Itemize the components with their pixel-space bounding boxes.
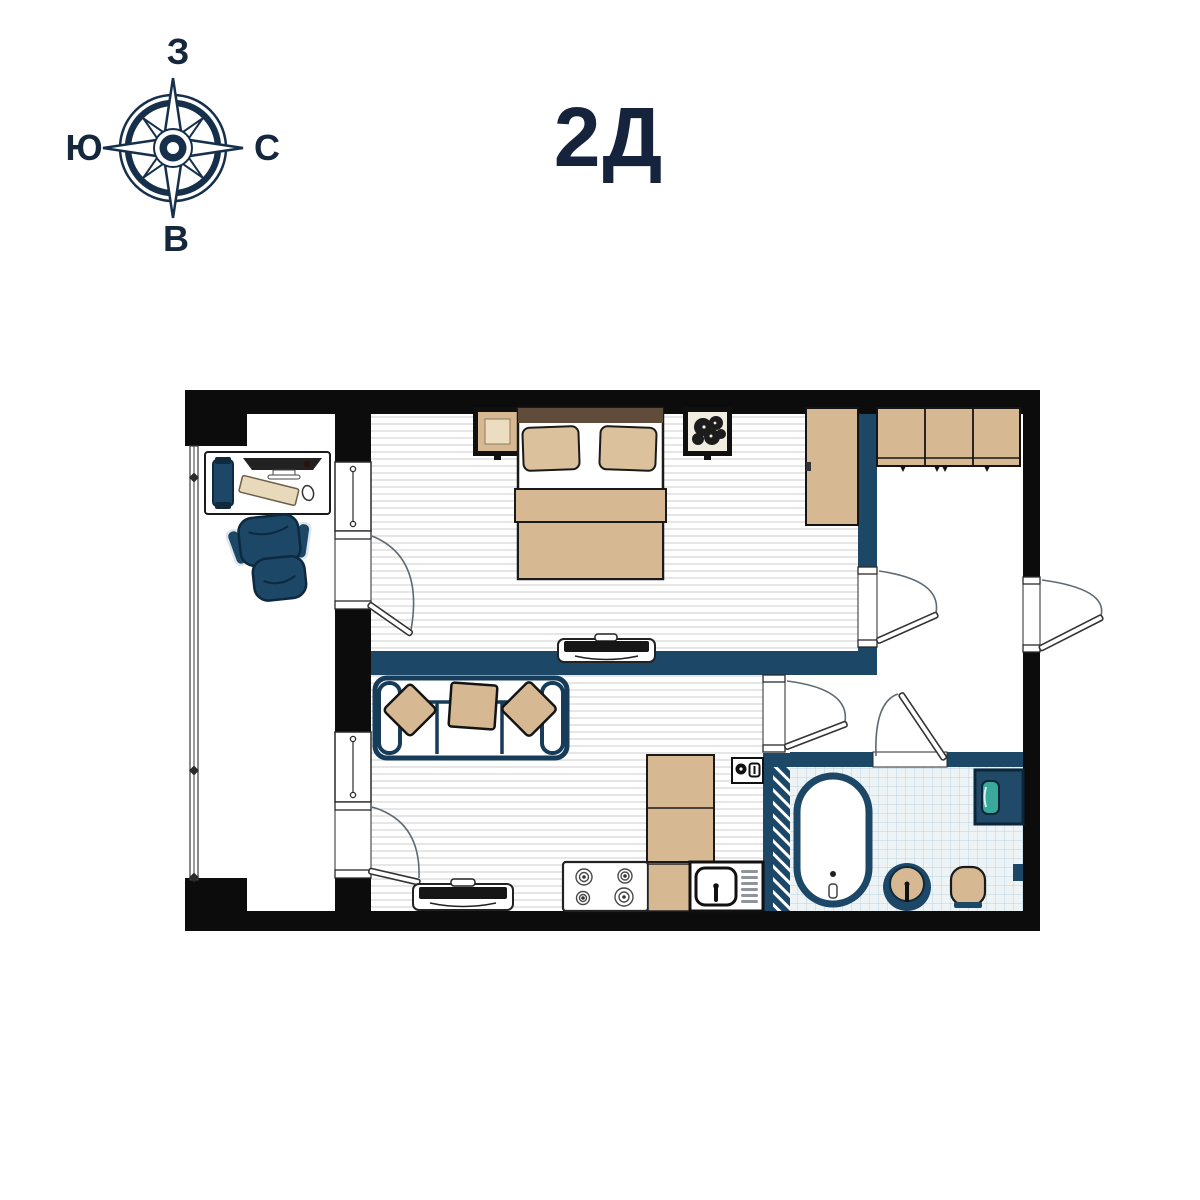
plan-title: 2Д xyxy=(509,95,709,179)
compass-label-left: Ю xyxy=(65,127,102,168)
vent-shaft-hatch xyxy=(773,767,790,911)
living-room-window xyxy=(335,732,371,802)
towel-rail xyxy=(1013,864,1023,881)
floor-plan-page: З С В Ю 2Д xyxy=(0,0,1200,1200)
toilet xyxy=(951,867,985,908)
compass-rose: З С В Ю xyxy=(58,33,288,263)
bed-blanket-fold xyxy=(515,489,666,522)
kitchen-sink xyxy=(690,862,763,911)
compass-label-bottom: В xyxy=(163,218,189,259)
bedroom-tv xyxy=(558,634,655,662)
bed-pillow xyxy=(599,426,656,471)
wall-hallway-bathroom-right xyxy=(947,752,1023,767)
wardrobe xyxy=(806,408,858,525)
wall-corner-bottom-left xyxy=(185,878,247,931)
balcony-wall-lower xyxy=(335,878,371,911)
kitchen-counter xyxy=(648,864,690,911)
bed-blanket xyxy=(518,522,663,579)
door-leaf xyxy=(1039,615,1104,652)
compass-label-top: З xyxy=(167,33,190,72)
bed-headboard xyxy=(518,408,663,423)
wall-hallway-bathroom-left xyxy=(790,752,873,767)
wall-bedroom-hallway xyxy=(858,414,877,567)
bathtub xyxy=(797,776,869,904)
balcony-wall-middle xyxy=(335,609,371,732)
bedroom-window xyxy=(335,462,371,531)
nightstand-right xyxy=(683,407,732,460)
tub-faucet xyxy=(829,884,837,898)
wall-bottom xyxy=(185,911,1040,931)
hallway-furniture xyxy=(877,408,1020,472)
wall-right-upper xyxy=(1023,390,1040,577)
desk-power-button xyxy=(304,461,311,468)
compass-label-right: С xyxy=(254,127,280,168)
kitchen-appliance-box xyxy=(732,758,763,783)
sink-faucet xyxy=(714,886,718,902)
wall-right-lower xyxy=(1023,652,1040,931)
door-swing-arc xyxy=(1042,580,1102,616)
entrance-door xyxy=(1023,577,1104,652)
compass-hub xyxy=(154,129,192,167)
balcony-glazing xyxy=(189,446,199,882)
hallway-closet xyxy=(877,408,1020,472)
bed-pillow xyxy=(522,426,579,471)
living-room-tv xyxy=(413,879,513,910)
sofa xyxy=(375,678,567,758)
toilet-tank xyxy=(954,902,982,908)
tv-screen xyxy=(419,887,507,899)
stove xyxy=(563,862,648,911)
nightstand-left xyxy=(473,407,522,460)
double-bed xyxy=(515,408,666,579)
washbasin xyxy=(883,863,931,911)
sofa-cushion xyxy=(449,682,498,729)
desk-speaker xyxy=(213,457,233,509)
floor-plan xyxy=(185,390,1185,935)
balcony-wall-upper xyxy=(335,414,371,462)
tv-screen xyxy=(564,641,649,652)
washing-machine xyxy=(975,770,1023,824)
basin-faucet xyxy=(905,884,909,902)
wall-corner-top-left xyxy=(185,390,247,446)
